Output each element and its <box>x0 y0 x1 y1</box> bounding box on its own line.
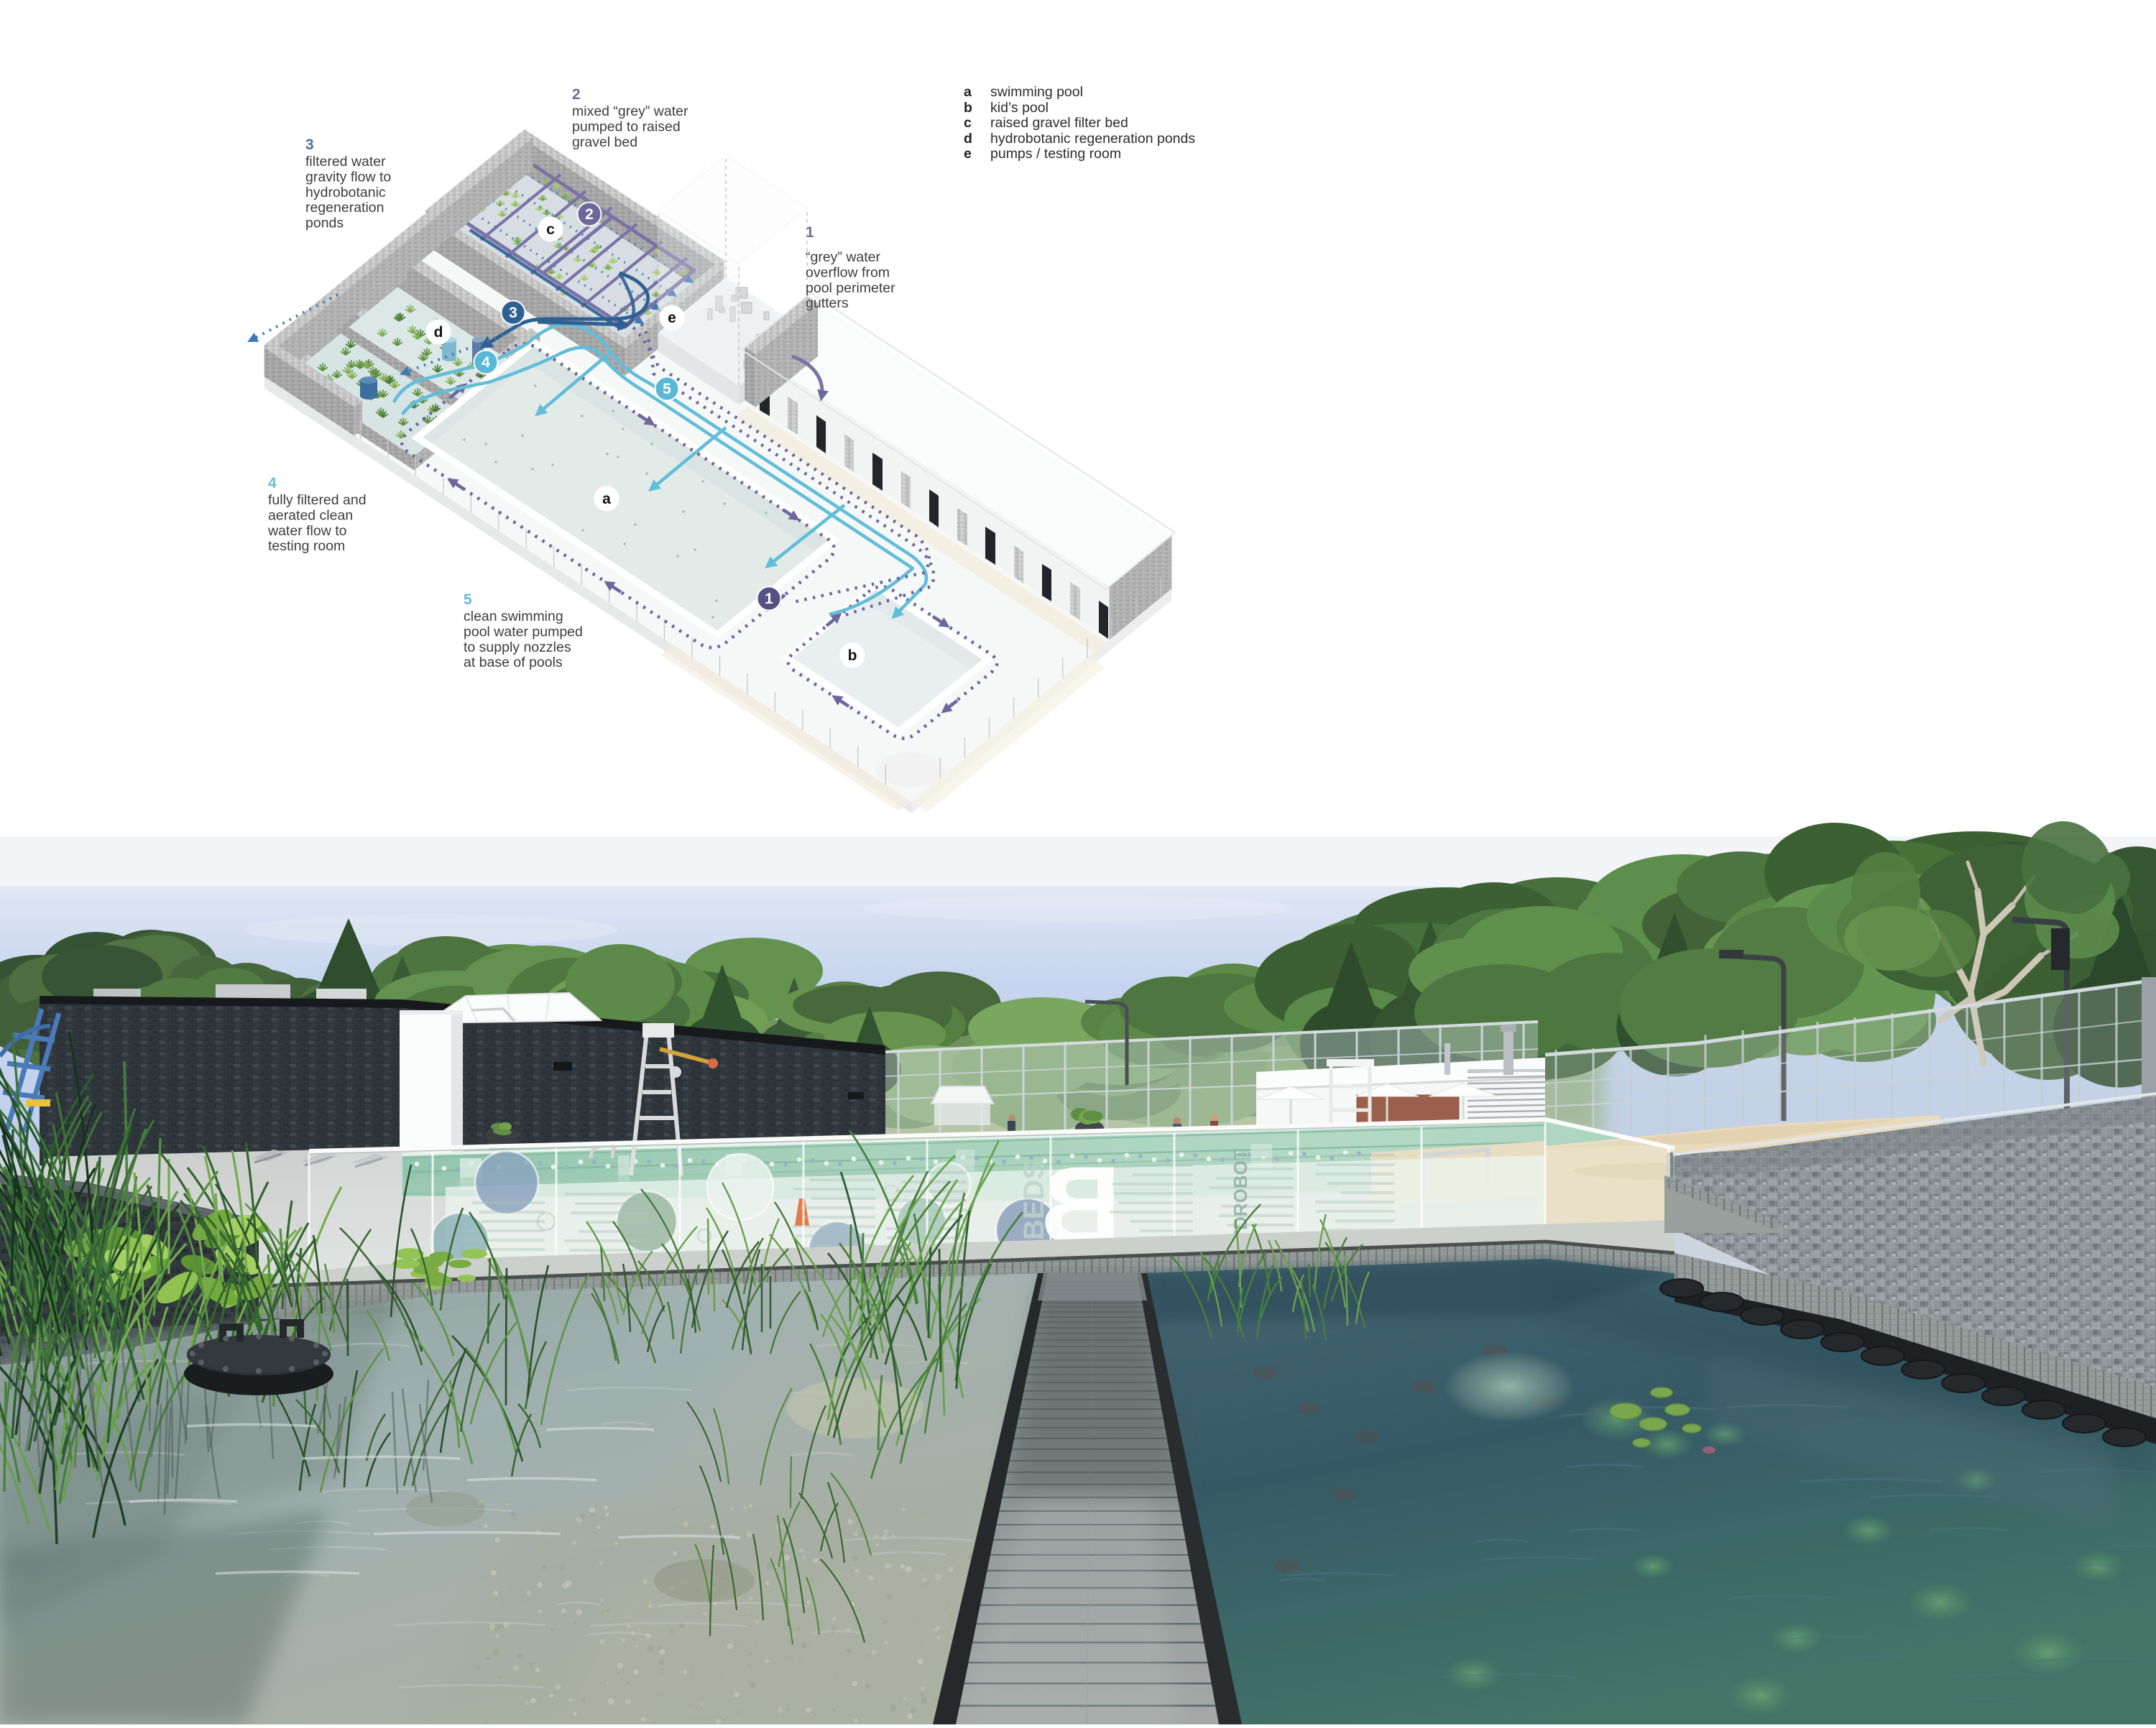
svg-text:3: 3 <box>509 305 517 321</box>
svg-text:to supply nozzles: to supply nozzles <box>464 639 571 655</box>
svg-text:4: 4 <box>268 475 277 491</box>
svg-text:e: e <box>964 146 972 162</box>
svg-text:kid’s pool: kid’s pool <box>990 100 1049 116</box>
svg-text:1: 1 <box>806 224 814 241</box>
svg-text:pool water pumped: pool water pumped <box>464 624 583 639</box>
svg-text:5: 5 <box>464 591 472 608</box>
svg-text:raised gravel filter bed: raised gravel filter bed <box>990 115 1128 131</box>
svg-text:2: 2 <box>585 206 594 223</box>
svg-text:d: d <box>964 131 972 147</box>
svg-text:filtered water: filtered water <box>305 154 386 170</box>
svg-text:b: b <box>848 647 857 664</box>
svg-text:“grey” water: “grey” water <box>806 249 881 265</box>
svg-text:3: 3 <box>305 137 314 153</box>
svg-text:5: 5 <box>663 381 671 397</box>
svg-text:b: b <box>964 100 972 116</box>
svg-text:aerated clean: aerated clean <box>268 507 353 523</box>
svg-text:BEDS: BEDS <box>1018 1160 1050 1240</box>
svg-text:c: c <box>964 115 972 131</box>
svg-text:overflow from: overflow from <box>806 264 890 280</box>
svg-text:d: d <box>434 324 443 341</box>
svg-text:c: c <box>546 221 555 238</box>
svg-text:mixed “grey” water: mixed “grey” water <box>572 103 688 119</box>
svg-text:hydrobotanic regeneration pond: hydrobotanic regeneration ponds <box>990 131 1195 147</box>
svg-text:hydrobotanic: hydrobotanic <box>305 185 386 200</box>
svg-text:pool perimeter: pool perimeter <box>806 280 895 296</box>
svg-text:e: e <box>668 310 676 326</box>
svg-text:clean swimming: clean swimming <box>464 609 563 624</box>
svg-text:gravel bed: gravel bed <box>572 134 637 150</box>
svg-text:pumps / testing room: pumps / testing room <box>990 146 1121 162</box>
svg-text:a: a <box>964 84 972 100</box>
svg-text:4: 4 <box>482 354 490 371</box>
svg-text:regeneration: regeneration <box>305 200 384 216</box>
svg-text:swimming pool: swimming pool <box>990 84 1083 100</box>
svg-text:ponds: ponds <box>305 216 344 231</box>
svg-text:water flow to: water flow to <box>267 523 347 539</box>
svg-text:testing room: testing room <box>268 538 345 554</box>
svg-text:at base of pools: at base of pools <box>464 655 563 670</box>
svg-text:1: 1 <box>765 591 773 607</box>
svg-text:pumped to raised: pumped to raised <box>572 119 681 134</box>
svg-text:2: 2 <box>572 86 581 103</box>
svg-text:gutters: gutters <box>806 295 849 311</box>
svg-text:a: a <box>602 491 611 507</box>
svg-text:fully filtered and: fully filtered and <box>268 492 367 508</box>
svg-text:gravity flow to: gravity flow to <box>305 169 391 185</box>
